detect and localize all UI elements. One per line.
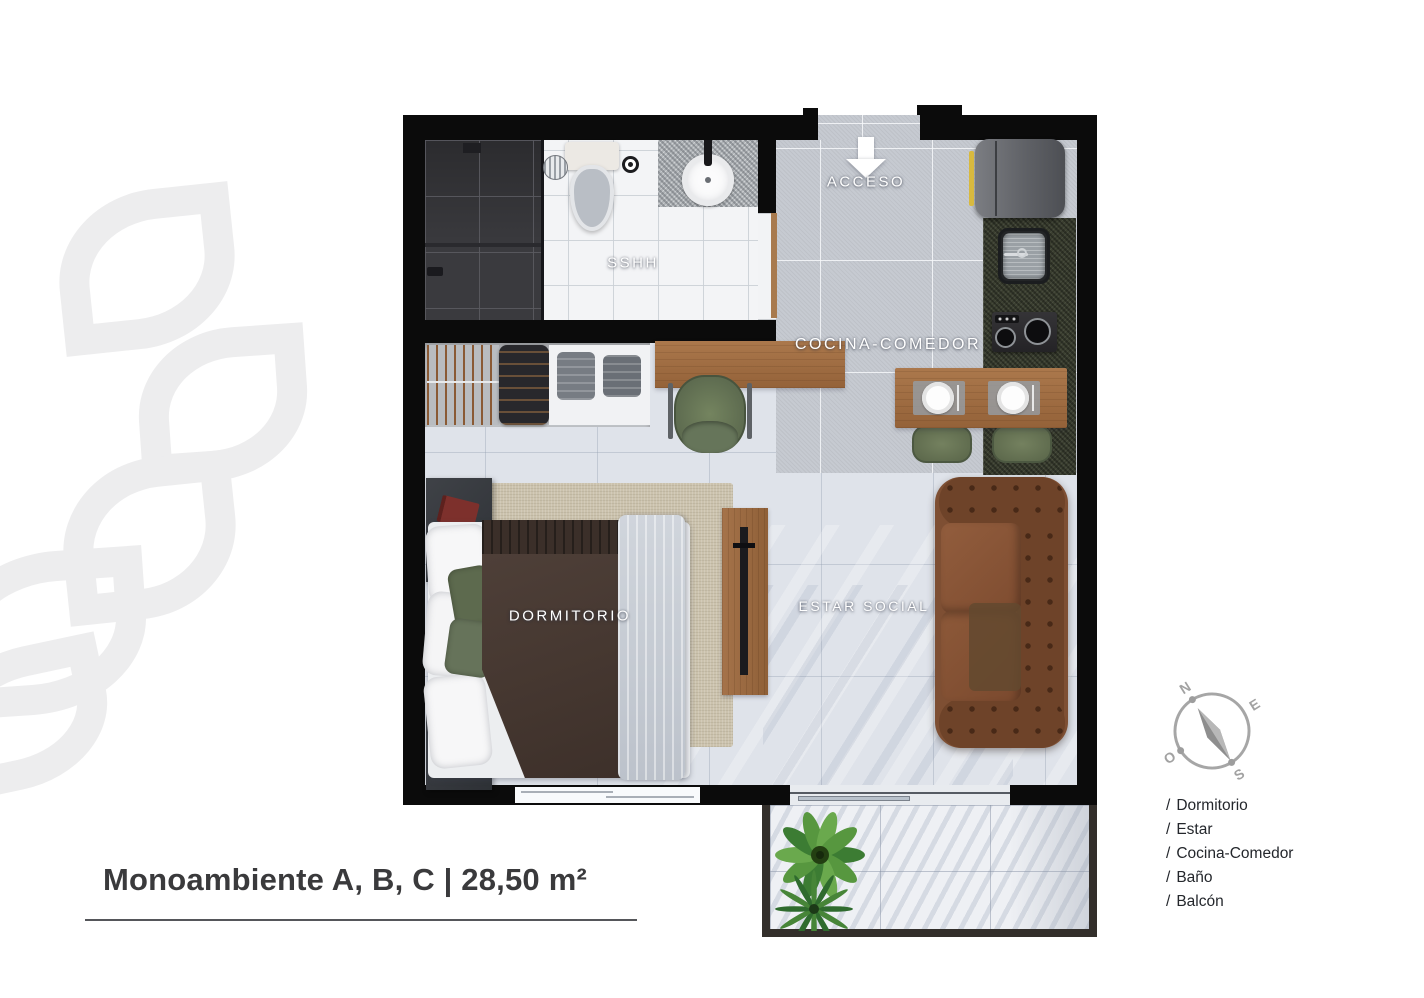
legend-item-estar: /Estar	[1166, 818, 1293, 842]
label-sshh: SSHH	[607, 255, 659, 272]
plants-icon	[772, 805, 872, 931]
tv	[740, 527, 748, 675]
burner	[995, 327, 1016, 348]
label-cocina-comedor: COCINA-COMEDOR	[795, 336, 981, 354]
office-chair	[672, 375, 748, 457]
floor-drain-dot	[628, 162, 633, 167]
shower-area	[425, 140, 544, 320]
compass-south: S	[1231, 765, 1247, 784]
legend-item-balcon: /Balcón	[1166, 890, 1293, 914]
legend-label: Estar	[1176, 821, 1212, 838]
title-underline	[85, 919, 637, 921]
dining-chair	[992, 425, 1052, 463]
balcony-door-opening	[790, 785, 1010, 805]
refrigerator-seam	[995, 141, 997, 216]
balcony-shade	[1009, 805, 1089, 929]
shower-valve-icon	[427, 267, 443, 276]
legend-slash: /	[1166, 866, 1170, 890]
legend-label: Balcón	[1176, 893, 1223, 910]
towel-ring-icon	[543, 155, 568, 180]
shower-bench	[425, 243, 541, 247]
pillow	[422, 672, 493, 770]
entry-wall-stub	[917, 105, 962, 115]
compass-north: N	[1176, 678, 1193, 697]
tv-mount	[733, 543, 755, 548]
bedroom-window	[515, 787, 700, 803]
legend-slash: /	[1166, 842, 1170, 866]
cooktop-controls	[995, 315, 1019, 323]
compass-west: O	[1161, 748, 1179, 767]
apartment-plan: ACCESO SSHH COCINA-COMEDOR DORMITORIO ES…	[403, 115, 1097, 805]
legend-slash: /	[1166, 794, 1170, 818]
legend-item-cocina-comedor: /Cocina-Comedor	[1166, 842, 1293, 866]
bath-faucet-icon	[704, 140, 712, 166]
balcony	[762, 805, 1097, 937]
unit-title: Monoambiente A, B, C | 28,50 m²	[103, 862, 587, 898]
bath-sink-drain	[705, 177, 711, 183]
entry-wall-stub	[803, 108, 818, 115]
refrigerator	[975, 139, 1065, 218]
floor-plan-page: { "title": { "text": "Monoambiente A, B,…	[0, 0, 1424, 998]
legend: /Dormitorio /Estar /Cocina-Comedor /Baño…	[1166, 794, 1293, 914]
bathroom-door-threshold	[771, 213, 777, 318]
closet-rail	[427, 381, 499, 383]
legend-item-bano: /Baño	[1166, 866, 1293, 890]
compass-icon: N E S O	[1151, 665, 1273, 797]
plate	[922, 382, 954, 414]
bathroom-bottom-wall	[403, 320, 776, 343]
label-estar-social: ESTAR SOCIAL	[799, 598, 930, 614]
compass-east: E	[1246, 695, 1262, 714]
legend-label: Dormitorio	[1176, 797, 1247, 814]
legend-slash: /	[1166, 890, 1170, 914]
legend-label: Cocina-Comedor	[1176, 845, 1293, 862]
legend-item-dormitorio: /Dormitorio	[1166, 794, 1293, 818]
shower-head-icon	[463, 143, 481, 153]
label-acceso: ACCESO	[827, 174, 905, 191]
cutlery-icon	[957, 385, 959, 411]
plate	[997, 382, 1029, 414]
legend-label: Baño	[1176, 869, 1212, 886]
refrigerator-handle	[969, 151, 974, 206]
faucet-knob	[1017, 248, 1027, 258]
folded-clothes	[603, 355, 641, 397]
cutlery-icon	[1032, 385, 1034, 411]
blanket	[618, 515, 685, 780]
label-dormitorio: DORMITORIO	[509, 608, 631, 625]
burner	[1024, 318, 1051, 345]
duvet-pleats	[482, 520, 625, 554]
garment-bag	[499, 345, 549, 425]
dining-chair	[912, 425, 972, 463]
folded-clothes	[557, 352, 595, 400]
closet-hangers	[427, 345, 499, 425]
legend-slash: /	[1166, 818, 1170, 842]
